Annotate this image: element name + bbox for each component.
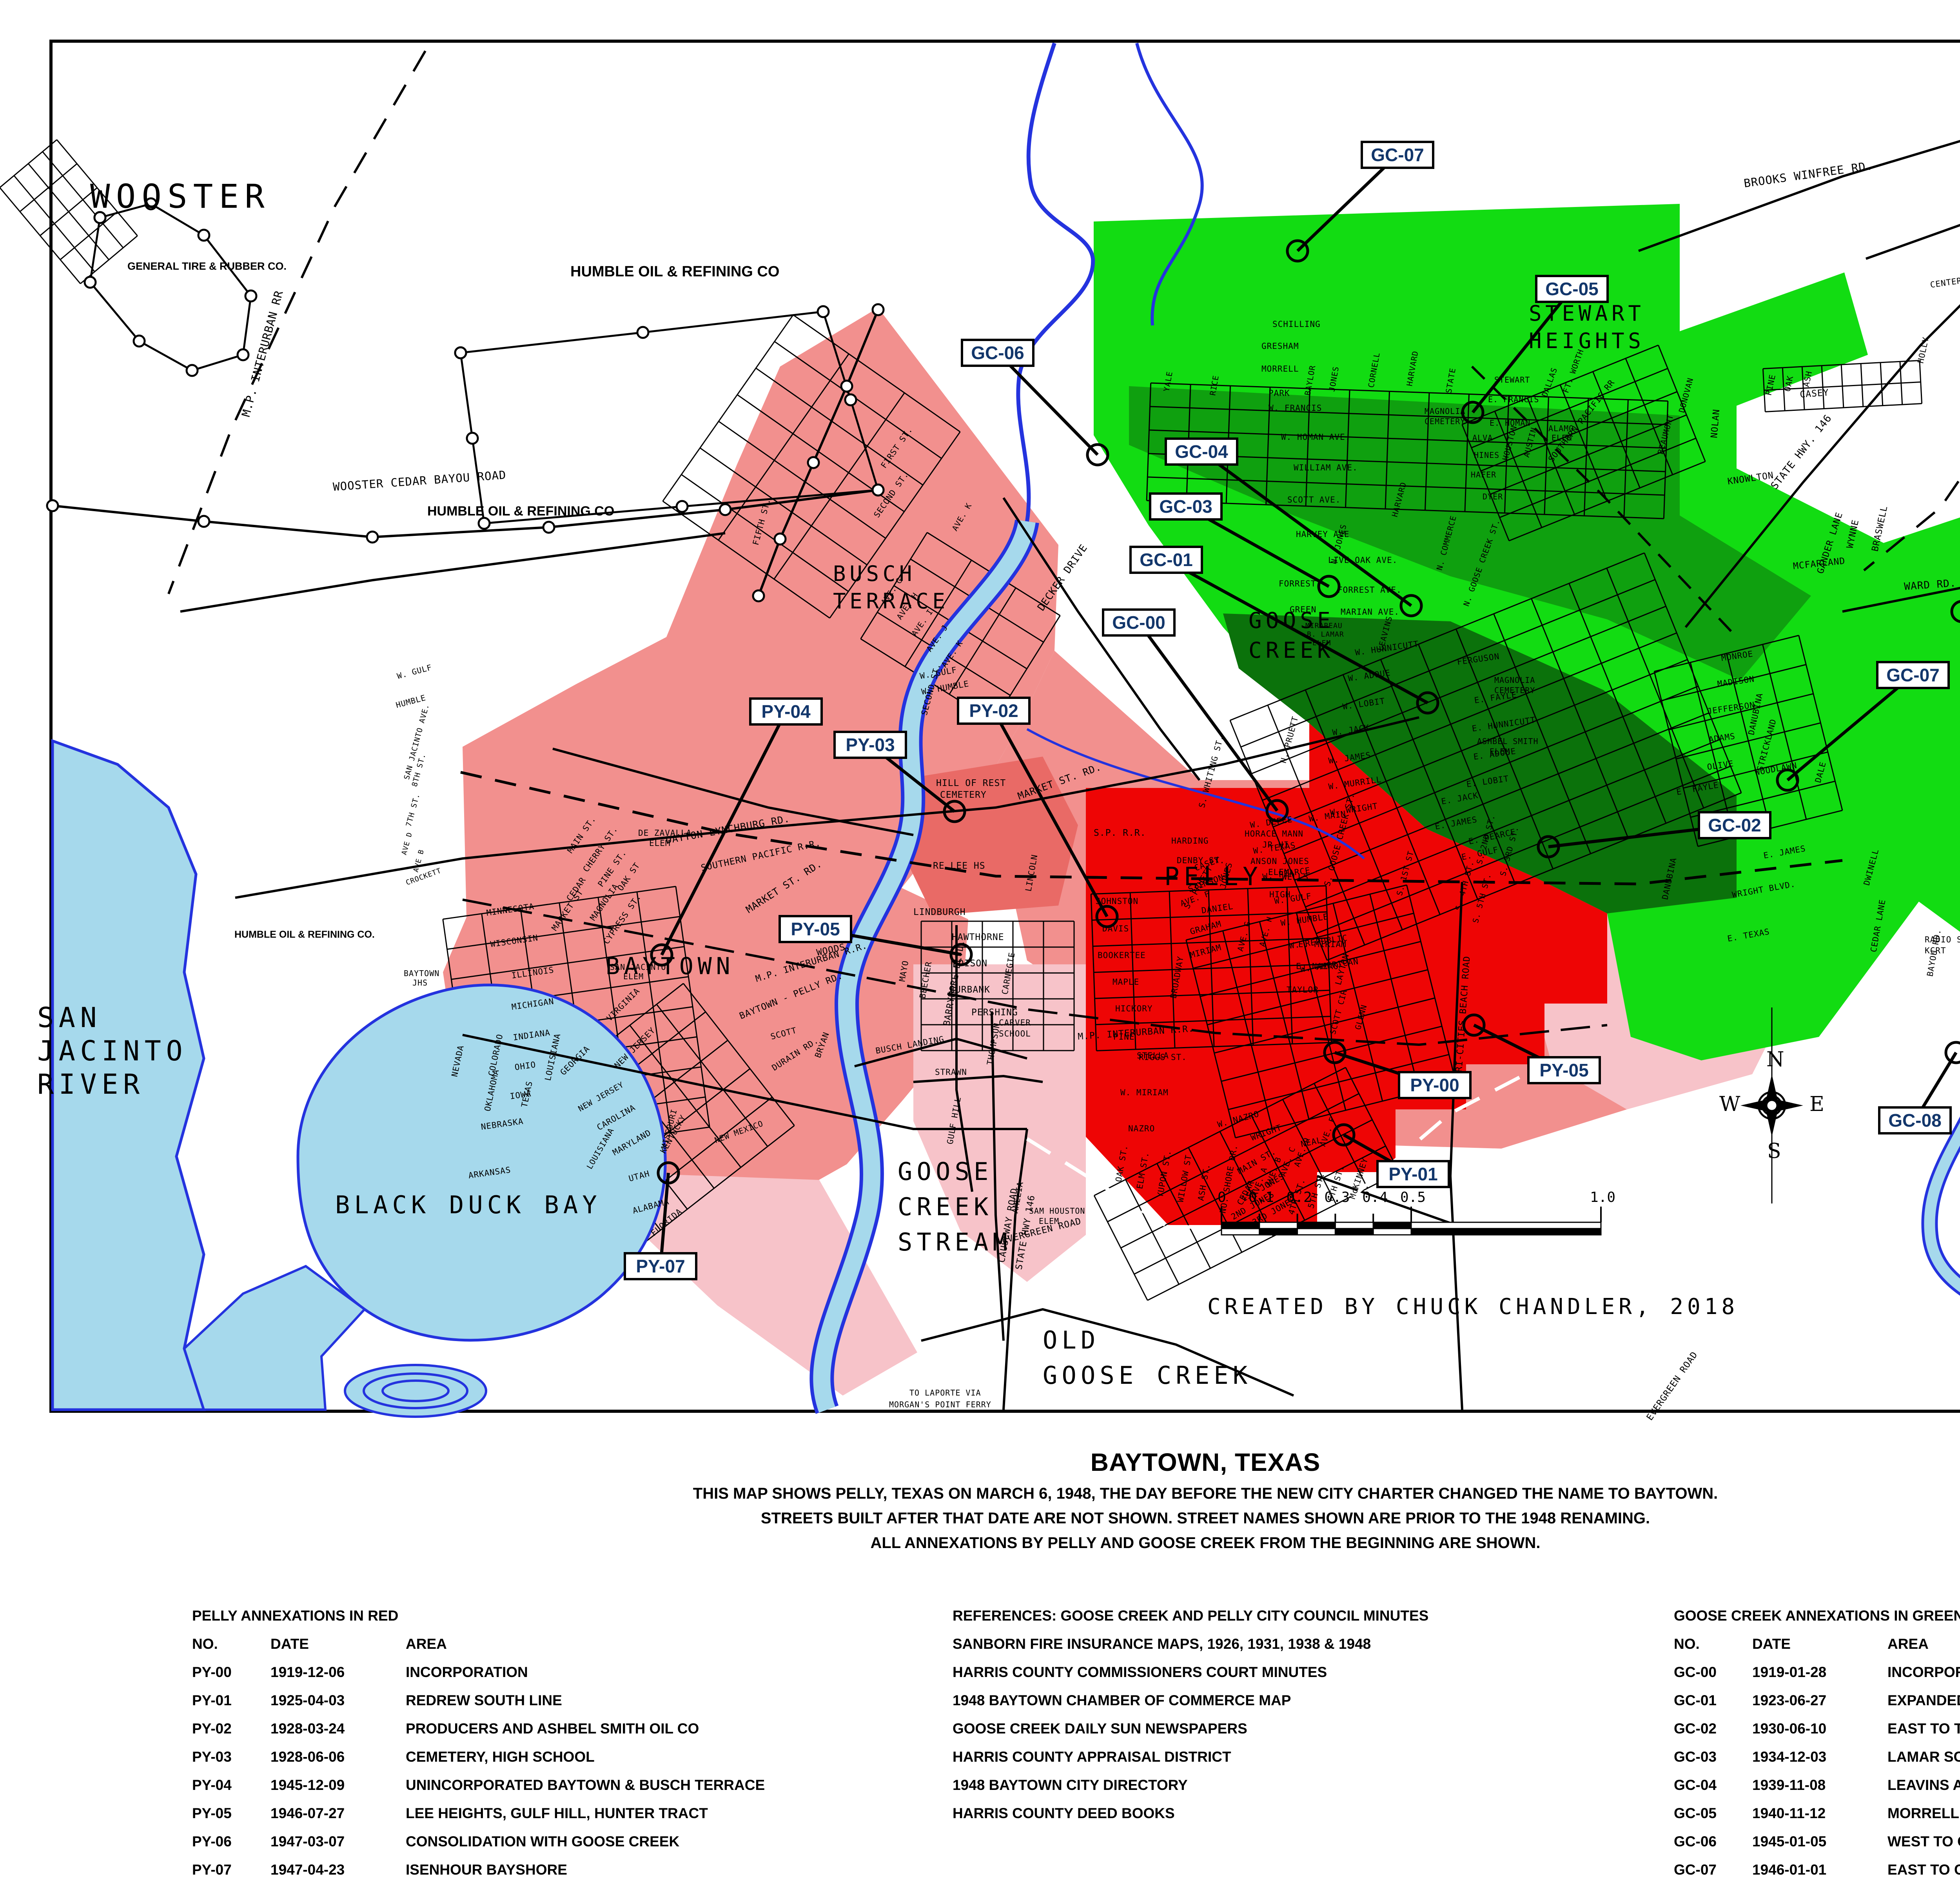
boundary-marker — [543, 522, 554, 533]
map-label: LIVE OAK AVE. — [1328, 555, 1397, 565]
reference-line: HARRIS COUNTY DEED BOOKS — [953, 1799, 1428, 1828]
table-header: GOOSE CREEK ANNEXATIONS IN GREEN — [1674, 1602, 1960, 1630]
scale-label: 0.1 — [1249, 1189, 1274, 1205]
table-cell: INCORPORATION — [406, 1658, 765, 1686]
map-label: HAFER — [1471, 470, 1496, 479]
scale-segment — [1259, 1222, 1298, 1229]
map-label: DE ZAVALLA — [638, 828, 691, 838]
boundary-marker — [198, 230, 209, 241]
compass-letter-W: W — [1719, 1093, 1740, 1116]
map-label: STRAWN — [935, 1067, 967, 1077]
scale-label: 0 — [1218, 1189, 1226, 1205]
boundary-marker — [187, 365, 198, 376]
table-cell: DATE — [1752, 1630, 1887, 1658]
map-label: HUMBLE OIL & REFINING CO — [427, 504, 614, 519]
map-label: BAYTOWN — [404, 969, 439, 978]
boundary-marker — [873, 304, 884, 315]
map-label: MORGAN'S POINT FERRY — [889, 1400, 991, 1409]
map-label: HARVEY AVE — [1296, 530, 1349, 539]
table-cell: PY-00 — [192, 1658, 270, 1686]
table-row: GC-001919-01-28INCORPORATION — [1674, 1658, 1960, 1686]
boundary-marker — [47, 500, 58, 511]
table-cell: 1928-06-06 — [270, 1743, 406, 1771]
map-label: GENERAL TIRE & RUBBER CO. — [127, 260, 287, 272]
table-row: PY-021928-03-24PRODUCERS AND ASHBEL SMIT… — [192, 1715, 765, 1743]
table-cell: EAST TO CEDAR BAYOU — [1887, 1856, 1960, 1884]
table-row: PY-061947-03-07CONSOLIDATION WITH GOOSE … — [192, 1828, 765, 1856]
reference-line: 1948 BAYTOWN CHAMBER OF COMMERCE MAP — [953, 1686, 1428, 1715]
table-cell: 1934-12-03 — [1752, 1743, 1887, 1771]
boundary-marker — [455, 347, 466, 358]
map-label: JACINTO — [37, 1035, 187, 1067]
callout-label-GC-06: GC-06 — [971, 343, 1024, 363]
table-cell: 1947-04-23 — [270, 1856, 406, 1884]
callout-label-GC-04: GC-04 — [1175, 441, 1228, 462]
map-label: HILL OF REST — [936, 778, 1006, 788]
map-label: W. MIRIAM — [1120, 1088, 1169, 1097]
map-label: GOOSE — [898, 1157, 993, 1186]
table-cell: GC-03 — [1674, 1743, 1752, 1771]
callout-label-GC-07: GC-07 — [1371, 145, 1424, 165]
table-cell: 1928-03-24 — [270, 1715, 406, 1743]
map-label: STREAM — [898, 1228, 1012, 1256]
table-row: NO.DATEAREA — [192, 1630, 765, 1658]
callout-label-GC-07: GC-07 — [1886, 665, 1939, 685]
reference-line: HARRIS COUNTY COMMISSIONERS COURT MINUTE… — [953, 1658, 1428, 1686]
map-label: ELEM — [1039, 1216, 1059, 1226]
table-cell: GC-01 — [1674, 1686, 1752, 1715]
table-cell: AREA — [1887, 1630, 1960, 1658]
table-cell: INCORPORATION — [1887, 1658, 1960, 1686]
map-label: RE LEE HS — [933, 861, 985, 871]
scale-segment — [1335, 1229, 1373, 1235]
reference-line: HARRIS COUNTY APPRAISAL DISTRICT — [953, 1743, 1428, 1771]
map-label: ELEM — [1490, 747, 1510, 756]
table-cell: EXPANDED BOUNDARY — [1887, 1686, 1960, 1715]
table-cell: UNINCORPORATED BAYTOWN & BUSCH TERRACE — [406, 1771, 765, 1799]
table-cell: 1919-01-28 — [1752, 1658, 1887, 1686]
table-row: PY-041945-12-09UNINCORPORATED BAYTOWN & … — [192, 1771, 765, 1799]
map-label: E. FRANCIS — [1488, 395, 1539, 404]
table-row: NO.DATEAREA — [1674, 1630, 1960, 1658]
map-label: STELLA — [1137, 1051, 1169, 1060]
table-cell: GC-06 — [1674, 1828, 1752, 1856]
callout-label-PY-02: PY-02 — [969, 701, 1018, 721]
table-cell: 1925-04-03 — [270, 1686, 406, 1715]
callout-label-GC-00: GC-00 — [1112, 612, 1165, 633]
map-label: TAYLOR — [1287, 985, 1319, 995]
scale-segment — [1298, 1222, 1336, 1229]
map-label: SAN — [37, 1002, 102, 1034]
map-label: MORRELL — [1261, 364, 1299, 374]
table-cell: PY-01 — [192, 1686, 270, 1715]
table-cell: 1930-06-10 — [1752, 1715, 1887, 1743]
scale-segment — [1221, 1229, 1259, 1235]
table-row: GC-051940-11-12MORRELL PARK & STEWART HE… — [1674, 1799, 1960, 1828]
table-row: GC-011923-06-27EXPANDED BOUNDARY — [1674, 1686, 1960, 1715]
map-label: HINES — [1474, 450, 1499, 460]
callout-label-PY-05: PY-05 — [1539, 1060, 1588, 1080]
map-label: HICKORY — [1115, 1004, 1153, 1013]
map-label: SCHOOL — [999, 1029, 1031, 1038]
map-label: HUMBLE OIL & REFINING CO — [570, 263, 779, 280]
table-cell: REDREW SOUTH LINE — [406, 1686, 765, 1715]
table-cell: ISENHOUR BAYSHORE — [406, 1856, 765, 1884]
map-label: PERSHING — [971, 1007, 1018, 1018]
scale-segment — [1373, 1222, 1411, 1229]
map-label: DYER — [1483, 492, 1503, 501]
boundary-marker — [808, 457, 819, 468]
map-label: RADIO STATION — [1925, 935, 1960, 944]
map-label: GRESHAM — [1261, 341, 1299, 351]
scale-label: 0.3 — [1324, 1189, 1350, 1205]
callout-label-PY-00: PY-00 — [1410, 1075, 1459, 1095]
scale-segment — [1298, 1229, 1336, 1235]
callout-label-GC-05: GC-05 — [1545, 279, 1598, 299]
reference-line: GOOSE CREEK DAILY SUN NEWSPAPERS — [953, 1715, 1428, 1743]
callout-label-GC-03: GC-03 — [1159, 496, 1212, 517]
table-header: PELLY ANNEXATIONS IN RED — [192, 1602, 765, 1630]
table-cell: PY-05 — [192, 1799, 270, 1828]
map-label: RIVER — [37, 1068, 145, 1100]
reference-line: 1948 BAYTOWN CITY DIRECTORY — [953, 1771, 1428, 1799]
map-label: HORACE MANN — [1245, 829, 1303, 839]
table-cell: GC-07 — [1674, 1856, 1752, 1884]
map-label: FORREST — [1279, 579, 1316, 588]
table-row: GC-031934-12-03LAMAR SCHOOL TRACT — [1674, 1743, 1960, 1771]
table-cell: 1945-12-09 — [270, 1771, 406, 1799]
boundary-marker — [637, 327, 648, 338]
compass-letter-S: S — [1767, 1140, 1781, 1163]
map-label: CEMETERY — [940, 790, 987, 800]
table-cell: CONSOLIDATION WITH GOOSE CREEK — [406, 1828, 765, 1856]
table-cell: GC-00 — [1674, 1658, 1752, 1686]
table-cell: 1945-01-05 — [1752, 1828, 1887, 1856]
table-row: GC-041939-11-08LEAVINS ADDITION — [1674, 1771, 1960, 1799]
table-cell: MORRELL PARK & STEWART HEIGHTS — [1887, 1799, 1960, 1828]
table-cell: LAMAR SCHOOL TRACT — [1887, 1743, 1960, 1771]
map-label: TO LAPORTE VIA — [909, 1388, 981, 1398]
scale-label: 0.4 — [1362, 1189, 1388, 1205]
boundary-marker — [753, 590, 764, 601]
map-label: GOOSE CREEK — [1043, 1361, 1252, 1390]
map-label: GREEN — [1290, 605, 1316, 614]
map-label: B. LAMAR — [1307, 630, 1344, 639]
compass-letter-E: E — [1809, 1093, 1824, 1116]
table-row: PY-031928-06-06CEMETERY, HIGH SCHOOL — [192, 1743, 765, 1771]
map-label: PINE — [1113, 1032, 1135, 1042]
map-label: HEIGHTS — [1529, 329, 1645, 353]
caption-line: THIS MAP SHOWS PELLY, TEXAS ON MARCH 6, … — [0, 1485, 1960, 1503]
scale-label: 1.0 — [1590, 1189, 1615, 1205]
boundary-marker — [367, 532, 378, 543]
boundary-marker — [775, 534, 786, 545]
table-cell: LEAVINS ADDITION — [1887, 1771, 1960, 1799]
map-label: JHS — [412, 978, 428, 987]
callout-label-PY-01: PY-01 — [1388, 1164, 1437, 1184]
goose-creek-annexation-table: GOOSE CREEK ANNEXATIONS IN GREENNO.DATEA… — [1674, 1602, 1960, 1884]
map-label: BLACK DUCK BAY — [335, 1191, 601, 1219]
caption-line: STREETS BUILT AFTER THAT DATE ARE NOT SH… — [0, 1510, 1960, 1527]
table-cell: 1919-12-06 — [270, 1658, 406, 1686]
callout-label-GC-01: GC-01 — [1140, 550, 1192, 570]
table-row: GC-061945-01-05WEST TO GOOSE CREEK STREA… — [1674, 1828, 1960, 1856]
map-label: SAM HOUSTON — [1029, 1206, 1085, 1216]
scale-label: 0.2 — [1287, 1189, 1312, 1205]
map-label: PARK — [1269, 388, 1290, 398]
map-label: W. HOMAN AVE. — [1281, 432, 1350, 442]
reference-line: SANBORN FIRE INSURANCE MAPS, 1926, 1931,… — [953, 1630, 1428, 1658]
reference-line: REFERENCES: GOOSE CREEK AND PELLY CITY C… — [953, 1602, 1428, 1630]
map-canvas: WOOSTERSANJACINTORIVERBLACK DUCK BAYGOOS… — [0, 0, 1960, 1435]
compass-letter-N: N — [1766, 1048, 1784, 1071]
scale-segment — [1259, 1229, 1298, 1235]
map-label: HARDING — [1171, 836, 1209, 846]
boundary-marker — [479, 518, 490, 529]
table-cell: 1947-03-07 — [270, 1828, 406, 1856]
table-cell: NO. — [192, 1630, 270, 1658]
table-cell: EAST TO TENTH STREET — [1887, 1715, 1960, 1743]
table-cell: NO. — [1674, 1630, 1752, 1658]
table-cell: 1939-11-08 — [1752, 1771, 1887, 1799]
map-label: NAZRO — [1128, 1124, 1155, 1133]
compass-ring — [1766, 1100, 1777, 1111]
table-cell: CEMETERY, HIGH SCHOOL — [406, 1743, 765, 1771]
boundary-marker — [818, 306, 829, 317]
callout-label-PY-03: PY-03 — [846, 735, 895, 755]
boundary-marker — [720, 504, 731, 515]
boundary-marker — [85, 277, 96, 288]
map-label: MIRABEAU — [1305, 622, 1343, 630]
map-label: MARIAN AVE. — [1341, 607, 1399, 617]
boundary-marker — [134, 336, 145, 347]
table-cell: DATE — [270, 1630, 406, 1658]
boundary-marker — [198, 516, 209, 527]
map-label: HUMBLE OIL & REFINING CO. — [234, 929, 375, 940]
table-cell: PY-04 — [192, 1771, 270, 1799]
map-label: CARVER — [999, 1018, 1031, 1027]
table-row: GC-021930-06-10EAST TO TENTH STREET — [1674, 1715, 1960, 1743]
map-label: WOOSTER — [90, 177, 270, 216]
table-row: PY-011925-04-03REDREW SOUTH LINE — [192, 1686, 765, 1715]
map-label: BOOKERTEE — [1098, 951, 1146, 960]
table-cell: 1923-06-27 — [1752, 1686, 1887, 1715]
map-label: MAGNOLIA — [1425, 407, 1465, 416]
boundary-marker — [245, 290, 256, 301]
map-label: WILLIAM AVE. — [1294, 463, 1358, 472]
scale-segment — [1411, 1229, 1601, 1235]
callout-label-GC-08: GC-08 — [1888, 1110, 1941, 1131]
scale-segment — [1373, 1229, 1411, 1235]
table-cell: GC-02 — [1674, 1715, 1752, 1743]
boundary-marker — [873, 485, 884, 496]
map-label: CASEY — [1800, 388, 1829, 400]
table-cell: GC-04 — [1674, 1771, 1752, 1799]
map-label: W. FRANCIS — [1269, 403, 1322, 413]
map-label: ANSON JONES — [1250, 857, 1309, 866]
boundary-marker — [841, 381, 852, 392]
table-row: PY-051946-07-27LEE HEIGHTS, GULF HILL, H… — [192, 1799, 765, 1828]
table-row: GC-071946-01-01EAST TO CEDAR BAYOU — [1674, 1856, 1960, 1884]
map-credit: CREATED BY CHUCK CHANDLER, 2018 — [1207, 1294, 1739, 1320]
table-cell: WEST TO GOOSE CREEK STREAM — [1887, 1828, 1960, 1856]
scale-segment — [1411, 1222, 1601, 1229]
table-cell: PY-03 — [192, 1743, 270, 1771]
map-label: CEMETERY — [1425, 417, 1465, 426]
map-label: SCOTT AVE. — [1287, 495, 1341, 505]
boundary-marker — [467, 433, 478, 444]
map-label: S.P. R.R. — [1094, 828, 1146, 838]
table-cell: PRODUCERS AND ASHBEL SMITH OIL CO — [406, 1715, 765, 1743]
map-label: SCHILLING — [1272, 319, 1321, 329]
table-cell: PY-07 — [192, 1856, 270, 1884]
table-row: PY-071947-04-23ISENHOUR BAYSHORE — [192, 1856, 765, 1884]
caption-line: ALL ANNEXATIONS BY PELLY AND GOOSE CREEK… — [0, 1534, 1960, 1552]
references-list: REFERENCES: GOOSE CREEK AND PELLY CITY C… — [953, 1602, 1428, 1828]
table-cell: 1946-01-01 — [1752, 1856, 1887, 1884]
table-cell: PY-06 — [192, 1828, 270, 1856]
map-label: MAGNOLIA — [1494, 675, 1535, 685]
map-label: ASHBEL SMITH — [1477, 737, 1539, 746]
map-label: MAPLE — [1112, 977, 1139, 987]
map-label: CREEK — [898, 1192, 993, 1221]
boundary-marker — [238, 349, 249, 360]
table-cell: PY-02 — [192, 1715, 270, 1743]
table-cell: 1940-11-12 — [1752, 1799, 1887, 1828]
map-label: ALVA — [1472, 433, 1493, 443]
table-cell: GC-05 — [1674, 1799, 1752, 1828]
callout-label-GC-02: GC-02 — [1708, 815, 1761, 835]
map-label: OLD — [1043, 1326, 1100, 1354]
table-row: PY-001919-12-06INCORPORATION — [192, 1658, 765, 1686]
pelly-annexation-table: PELLY ANNEXATIONS IN REDNO.DATEAREAPY-00… — [192, 1602, 765, 1884]
scale-segment — [1335, 1222, 1373, 1229]
scale-segment — [1221, 1222, 1259, 1229]
boundary-marker — [845, 394, 856, 405]
table-cell: AREA — [406, 1630, 765, 1658]
boundary-marker — [677, 501, 688, 512]
scale-label: 0.5 — [1400, 1189, 1426, 1205]
map-label: ELEM — [649, 839, 671, 848]
map-label: ELEM — [623, 972, 644, 981]
callout-label-PY-05: PY-05 — [791, 919, 840, 939]
page-title: BAYTOWN, TEXAS — [0, 1448, 1960, 1477]
table-cell: LEE HEIGHTS, GULF HILL, HUNTER TRACT — [406, 1799, 765, 1828]
callout-label-PY-07: PY-07 — [636, 1256, 685, 1276]
map-label: LINDBURGH — [913, 907, 966, 917]
table-cell: 1946-07-27 — [270, 1799, 406, 1828]
callout-label-PY-04: PY-04 — [761, 701, 811, 722]
